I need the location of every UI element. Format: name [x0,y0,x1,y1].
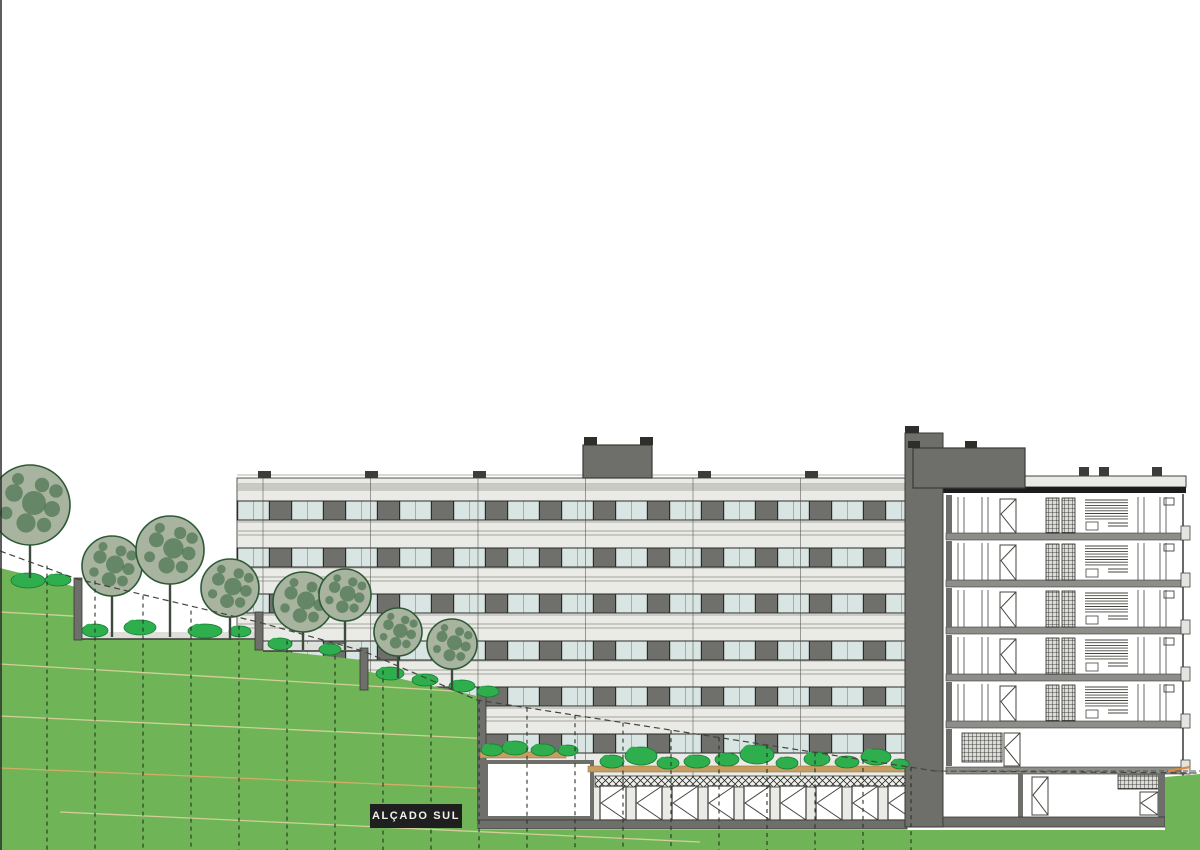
door-leaf-line [1005,733,1020,766]
section-pilaster [946,495,952,533]
section-pilaster [946,729,952,766]
transom-hatch-band [595,776,905,787]
machine-room-cap [908,441,920,448]
door-leaf-line [1001,545,1016,580]
section-roof-vent [1152,467,1162,476]
ground-floor-door [672,786,698,820]
ground-floor-door [636,786,662,820]
door-head-mark [1164,591,1174,598]
bush [268,638,292,650]
cut-shaft-hatch [1046,591,1059,627]
bush [776,757,798,769]
cut-shaft-hatch [1046,498,1059,533]
terrace-planter [588,766,908,772]
building-section [905,426,1190,827]
basement-door [1140,792,1158,815]
foundation-wall [943,817,1165,827]
drawing-title-text: ALÇADO SUL [372,810,460,822]
section-roof-vent [1099,467,1109,476]
bush [657,757,679,769]
retaining-wall [360,648,368,690]
floor-slab [946,627,1183,634]
basement-grille-hatch [1118,775,1162,789]
stair-newel-box [1086,663,1098,671]
garage-opening [486,762,592,818]
stair-newel-box [1086,569,1098,577]
door-head-mark [1164,685,1174,692]
door-leaf-line [1141,792,1158,815]
cut-shaft-hatch [1046,685,1059,721]
section-parapet [1025,476,1186,487]
cut-shaft-hatch [1062,685,1075,721]
section-roof-vent [1079,467,1089,476]
drawing-title-label: ALÇADO SUL [370,804,462,828]
tree [0,465,70,578]
roof-vent [805,471,818,478]
floor-slab [946,533,1183,540]
bush [891,759,909,769]
door-leaf-line [1001,639,1016,674]
balcony-slab-tab [1181,714,1190,728]
bush [188,624,222,638]
cut-shaft-hatch [1046,544,1059,580]
machine-room-cap [965,441,977,448]
bush [625,747,657,765]
rooftop-cap [584,437,597,445]
floor-slab [946,674,1183,681]
door-leaf-line [1001,499,1016,533]
roof-vent [698,471,711,478]
ground-floor-door [780,786,806,820]
door-leaf-line [1001,592,1016,627]
bush [481,744,503,756]
bush [376,667,404,680]
section-pilaster [946,635,952,674]
window-band [237,548,905,567]
cut-shaft-hatch [1062,638,1075,674]
bush [319,644,341,655]
balcony-slab-tab [1181,620,1190,634]
bush [11,573,45,588]
ground-floor-door [600,786,626,820]
south-elevation-drawing [0,0,1200,850]
stair-newel-box [1086,522,1098,530]
roof-vent [365,471,378,478]
floor-slab [946,580,1183,587]
building-base-wall [476,820,907,829]
architectural-drawing-sheet: ALÇADO SUL [0,0,1200,850]
door-head-mark [1164,638,1174,645]
ground-floor-door [744,786,770,820]
basement-right-wall [1158,773,1165,817]
door-head-mark [1164,544,1174,551]
window-band [237,501,905,520]
elevator-shaft-hatch [962,733,1002,762]
section-pilaster [946,541,952,580]
cut-shaft-hatch [1046,638,1059,674]
bush [124,620,156,635]
roof-vent [258,471,271,478]
cut-shaft-hatch [1062,498,1075,533]
cut-shaft-hatch [1062,544,1075,580]
floor-slab [946,721,1183,728]
rooftop-volume [583,445,652,478]
rooftop-cap [640,437,653,445]
retaining-wall [255,612,263,650]
ground-floor-door [816,786,842,820]
bush [229,626,251,637]
ground-floor-door [708,786,734,820]
bush [684,755,710,768]
stair-newel-box [1086,616,1098,624]
balcony-slab-tab [1181,526,1190,540]
section-pilaster [946,682,952,721]
tree [136,516,204,637]
bush [412,674,438,686]
section-machine-room [913,448,1025,488]
door-head-mark [1164,498,1174,505]
door-leaf-line [1033,777,1048,815]
retaining-wall [74,578,82,640]
basement-door [1032,777,1048,815]
roof-vent [473,471,486,478]
bush [861,749,891,765]
balcony-slab-tab [1181,667,1190,681]
bush [740,745,774,764]
bush [531,744,555,756]
bush [477,686,499,697]
cut-shaft-hatch [1062,591,1075,627]
basement-wall [1018,773,1023,817]
balcony-slab-tab [1181,573,1190,587]
bush [600,755,624,768]
section-pilaster [946,588,952,627]
door-leaf-line [1001,686,1016,721]
stair-newel-box [1086,710,1098,718]
bush [502,741,528,755]
ground-floor-door [852,786,878,820]
cut-wall-cap [905,426,919,433]
